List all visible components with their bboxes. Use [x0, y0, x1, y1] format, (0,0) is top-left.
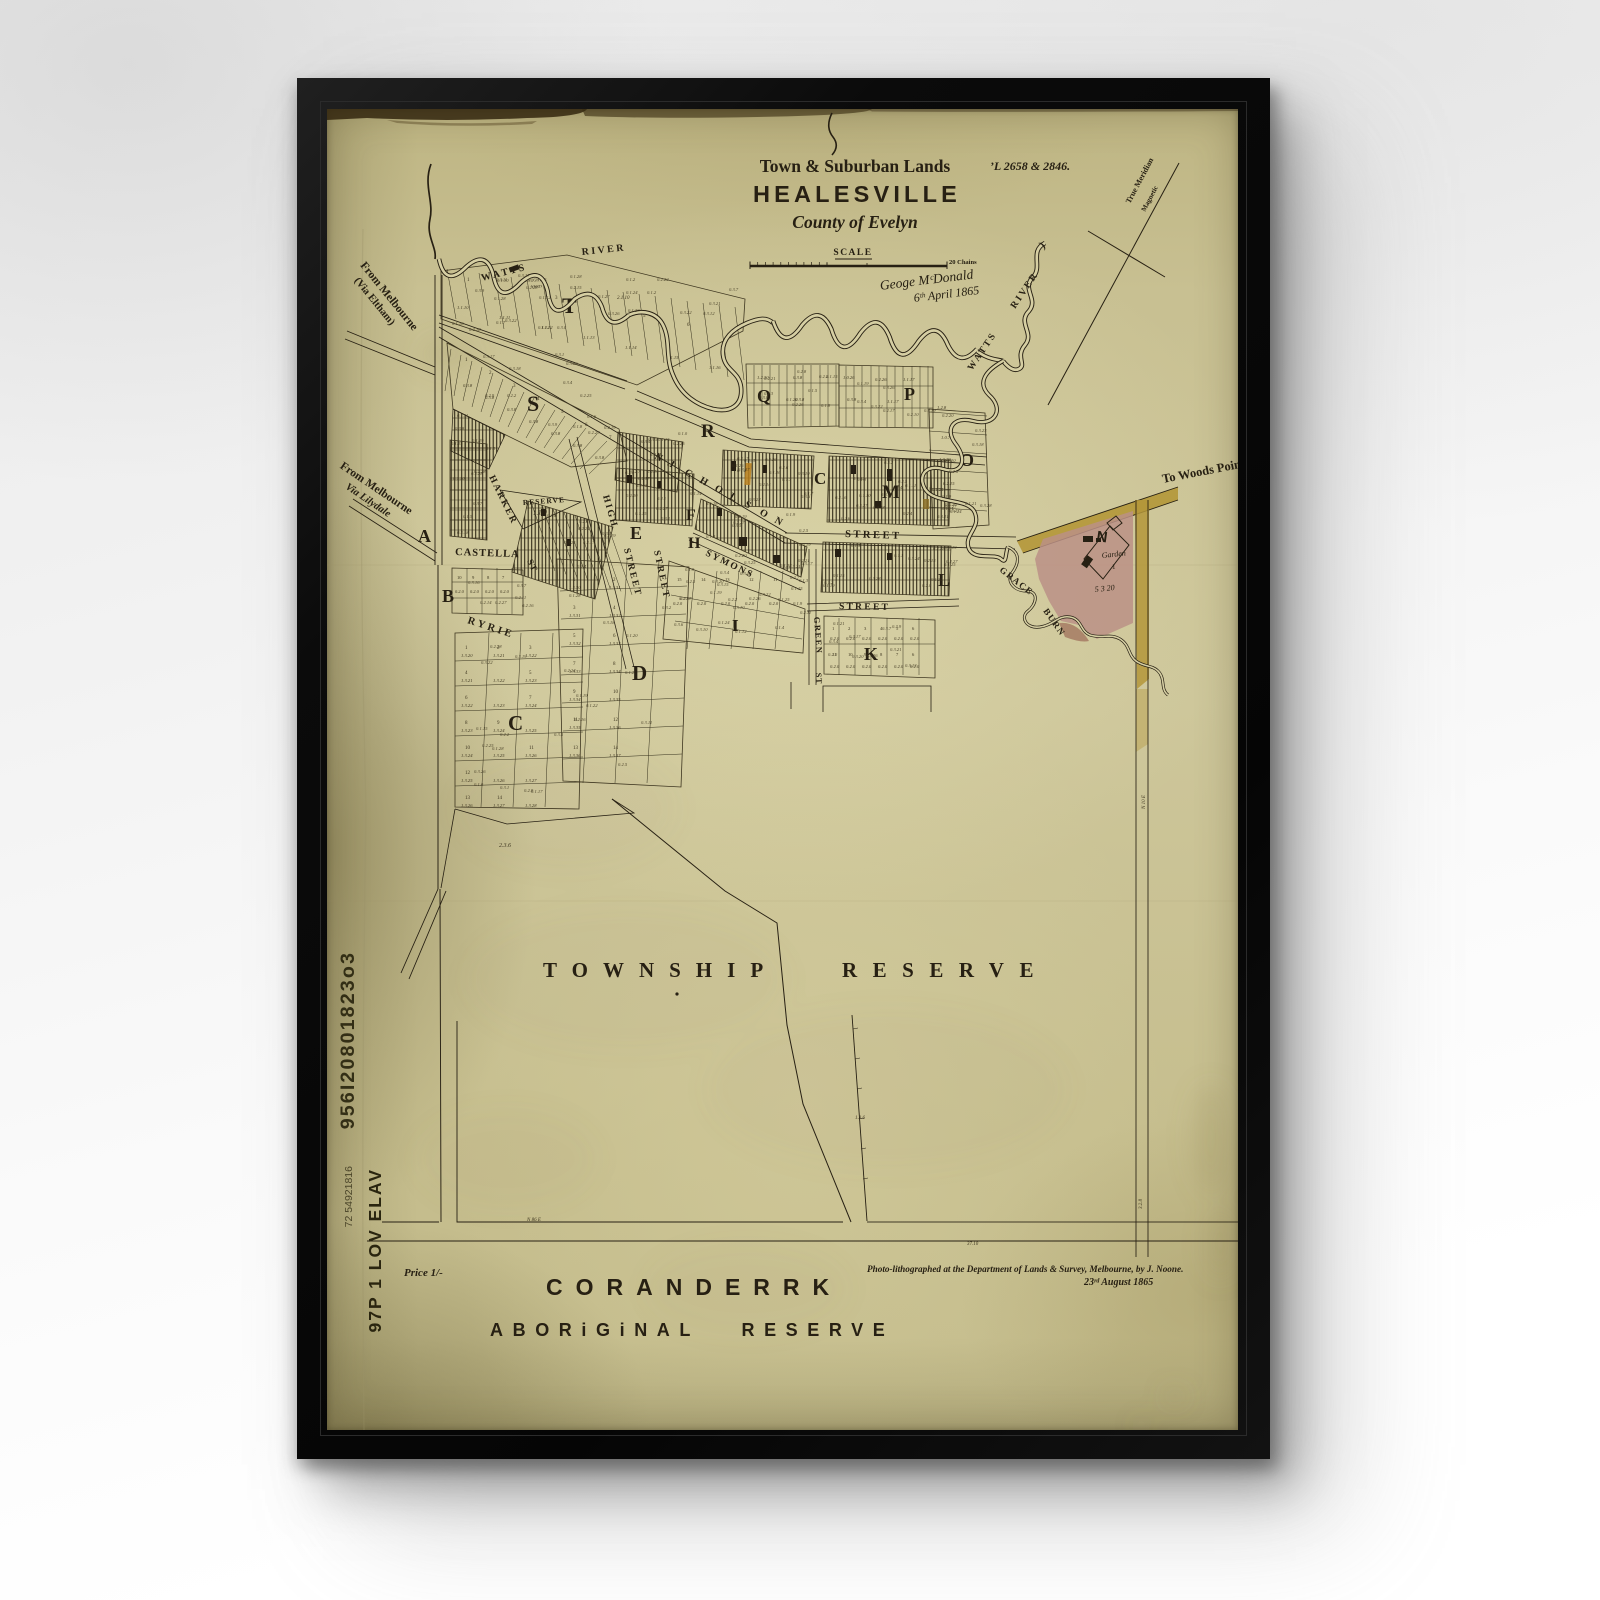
svg-text:B: B	[442, 586, 454, 606]
svg-text:K: K	[864, 644, 878, 664]
svg-text:0.3.7: 0.3.7	[473, 501, 483, 506]
svg-text:0.3.28: 0.3.28	[869, 576, 881, 581]
svg-text:0.2.6: 0.2.6	[579, 519, 589, 524]
svg-text:0.3.26: 0.3.26	[883, 385, 895, 390]
svg-text:D: D	[632, 661, 647, 685]
svg-text:1: 1	[465, 646, 468, 651]
svg-text:0.1.21: 0.1.21	[833, 621, 844, 626]
svg-text:0.3.21: 0.3.21	[789, 564, 800, 569]
svg-text:O: O	[713, 483, 725, 497]
svg-text:0.2.0: 0.2.0	[470, 589, 480, 594]
svg-text:5: 5	[529, 671, 532, 676]
svg-text:0.3.18: 0.3.18	[972, 442, 984, 447]
svg-text:0.3.0: 0.3.0	[557, 325, 567, 330]
svg-text:0.3.22: 0.3.22	[481, 660, 493, 665]
svg-text:0.2.28: 0.2.28	[469, 327, 481, 332]
svg-text:0.1.15: 0.1.15	[658, 437, 670, 442]
svg-text:0.1.2: 0.1.2	[647, 290, 657, 295]
svg-text:6: 6	[912, 652, 915, 657]
svg-text:0.3.9: 0.3.9	[602, 531, 612, 536]
svg-text:12: 12	[465, 771, 471, 776]
svg-text:0.2.0: 0.2.0	[910, 636, 920, 641]
svg-text:0.3.12: 0.3.12	[703, 311, 715, 316]
svg-text:0.2.0: 0.2.0	[862, 636, 872, 641]
svg-text:4: 4	[613, 606, 616, 611]
svg-text:10: 10	[457, 575, 462, 580]
svg-text:W A T T S: W A T T S	[966, 332, 998, 372]
svg-text:0.1.24: 0.1.24	[718, 620, 730, 625]
svg-text:0.2.17: 0.2.17	[737, 456, 749, 461]
svg-text:O: O	[758, 507, 770, 521]
svg-text:0.3.19: 0.3.19	[799, 542, 811, 547]
svg-text:8: 8	[613, 662, 616, 667]
svg-text:GRACE: GRACE	[998, 565, 1036, 598]
svg-text:0.3.17: 0.3.17	[518, 273, 530, 278]
svg-text:0.2.11: 0.2.11	[800, 610, 811, 615]
svg-text:0.3.7: 0.3.7	[517, 583, 527, 588]
svg-text:8: 8	[880, 652, 883, 657]
svg-text:0.2.14: 0.2.14	[759, 482, 771, 487]
svg-text:L: L	[728, 491, 740, 504]
svg-text:0.2.26: 0.2.26	[792, 402, 804, 407]
svg-text:9: 9	[573, 690, 576, 695]
svg-text:0.2.27: 0.2.27	[656, 506, 668, 511]
svg-text:2: 2	[848, 626, 851, 631]
svg-text:0.2.6: 0.2.6	[841, 516, 851, 521]
svg-text:0.2.15: 0.2.15	[744, 458, 756, 463]
svg-text:0.2.28: 0.2.28	[933, 546, 945, 551]
svg-text:0.1.23: 0.1.23	[628, 308, 640, 313]
svg-text:0.2.11: 0.2.11	[515, 595, 526, 600]
svg-text:0.2.28: 0.2.28	[526, 285, 538, 290]
svg-text:0.3.22: 0.3.22	[749, 497, 761, 502]
svg-text:N 86 E: N 86 E	[526, 1218, 541, 1223]
svg-text:1.3.24: 1.3.24	[525, 703, 537, 708]
svg-text:0.3.26: 0.3.26	[608, 311, 620, 316]
svg-text:0.1.25: 0.1.25	[778, 597, 790, 602]
svg-text:0.3.8: 0.3.8	[573, 443, 583, 448]
svg-text:1.0.26: 1.0.26	[843, 375, 855, 380]
svg-text:0.3.8: 0.3.8	[595, 455, 605, 460]
svg-text:1.3.22: 1.3.22	[493, 678, 505, 683]
svg-text:4: 4	[537, 397, 540, 402]
svg-text:0.2.4: 0.2.4	[893, 485, 903, 490]
svg-text:RESERVE: RESERVE	[842, 958, 1049, 982]
svg-text:72 54921816: 72 54921816	[343, 1166, 355, 1227]
svg-text:0.3.22: 0.3.22	[759, 592, 771, 597]
svg-text:6ᵗʰ April 1865: 6ᵗʰ April 1865	[913, 283, 980, 305]
svg-text:3.2.8: 3.2.8	[1139, 1199, 1144, 1210]
svg-text:6: 6	[912, 626, 915, 631]
svg-text:0.2.22: 0.2.22	[657, 277, 669, 282]
svg-text:C: C	[814, 469, 826, 488]
svg-text:L: L	[938, 570, 950, 590]
svg-text:A: A	[418, 526, 431, 546]
svg-text:0.2.0: 0.2.0	[769, 601, 779, 606]
svg-text:0.3.8: 0.3.8	[455, 426, 465, 431]
svg-text:0.1.15: 0.1.15	[791, 586, 803, 591]
svg-text:0.1.6: 0.1.6	[587, 414, 597, 419]
svg-text:0.2.0: 0.2.0	[485, 589, 495, 594]
svg-text:1.1.14: 1.1.14	[625, 345, 637, 350]
svg-text:0.1.24: 0.1.24	[626, 290, 638, 295]
svg-text:5: 5	[896, 626, 899, 631]
svg-text:0.3.26: 0.3.26	[765, 457, 777, 462]
svg-text:0.2.4: 0.2.4	[903, 511, 913, 516]
svg-text:15: 15	[677, 577, 682, 582]
svg-text:0.3.26: 0.3.26	[866, 653, 878, 658]
svg-text:7: 7	[896, 652, 899, 657]
svg-text:0.1.8: 0.1.8	[821, 403, 831, 408]
svg-text:1.0.7: 1.0.7	[941, 435, 951, 440]
svg-text:6: 6	[613, 634, 616, 639]
svg-text:0.3.28: 0.3.28	[980, 503, 992, 508]
svg-text:0.2.10: 0.2.10	[907, 412, 919, 417]
svg-text:0.1.27: 0.1.27	[780, 563, 792, 568]
svg-text:0.2.5: 0.2.5	[898, 479, 908, 484]
svg-text:2: 2	[613, 578, 616, 583]
svg-text:0.2.16: 0.2.16	[522, 603, 534, 608]
svg-text:1.3.24: 1.3.24	[461, 753, 473, 758]
svg-text:10: 10	[848, 652, 853, 657]
svg-text:CASTELLA: CASTELLA	[455, 547, 520, 560]
svg-text:HIGH: HIGH	[600, 494, 619, 529]
svg-text:7: 7	[502, 575, 505, 580]
svg-text:0.3.10: 0.3.10	[696, 627, 708, 632]
svg-text:12: 12	[749, 577, 754, 582]
svg-text:0.2.0: 0.2.0	[721, 601, 731, 606]
svg-text:0.2.28: 0.2.28	[588, 430, 600, 435]
svg-text:0.3.8: 0.3.8	[759, 395, 769, 400]
svg-text:4: 4	[599, 305, 602, 310]
svg-text:0.2.8: 0.2.8	[524, 788, 534, 793]
svg-text:0.1.21: 0.1.21	[965, 501, 976, 506]
svg-text:1.3.24: 1.3.24	[493, 728, 505, 733]
svg-text:11: 11	[529, 746, 534, 751]
svg-text:R I V E R: R I V E R	[1009, 272, 1040, 311]
svg-text:0.1.3: 0.1.3	[764, 391, 774, 396]
svg-text:0.2.25: 0.2.25	[580, 393, 592, 398]
svg-text:Via Lilydale: Via Lilydale	[343, 481, 393, 520]
svg-text:0.1.25: 0.1.25	[944, 562, 956, 567]
svg-text:M: M	[882, 482, 900, 503]
svg-text:0.3.18: 0.3.18	[457, 530, 469, 535]
svg-text:0.3.21: 0.3.21	[709, 301, 720, 306]
svg-text:0.1.27: 0.1.27	[598, 294, 610, 299]
svg-text:1.3.26: 1.3.26	[493, 778, 505, 783]
svg-text:0.1.21: 0.1.21	[932, 487, 943, 492]
svg-text:0.1.7: 0.1.7	[496, 320, 506, 325]
svg-text:0.2.21: 0.2.21	[798, 558, 809, 563]
svg-text:0.1.17: 0.1.17	[531, 789, 543, 794]
svg-text:0.2.27: 0.2.27	[946, 559, 958, 564]
svg-text:1.0.29: 1.0.29	[939, 457, 951, 462]
svg-text:5: 5	[643, 314, 646, 319]
svg-text:0.2.0: 0.2.0	[846, 664, 856, 669]
svg-text:0.3.21: 0.3.21	[937, 514, 948, 519]
svg-text:0.1.26: 0.1.26	[769, 470, 781, 475]
svg-text:0.3.17: 0.3.17	[483, 354, 495, 359]
svg-text:0.1.5: 0.1.5	[808, 388, 818, 393]
svg-text:ST: ST	[525, 557, 540, 573]
svg-text:C: C	[508, 711, 523, 735]
svg-text:1.1.13: 1.1.13	[583, 335, 595, 340]
svg-text:0.1.0: 0.1.0	[678, 431, 688, 436]
svg-text:RYRIE: RYRIE	[466, 615, 515, 640]
svg-text:0.3.4: 0.3.4	[829, 639, 839, 644]
svg-text:0.2.8: 0.2.8	[797, 369, 807, 374]
svg-text:0.2.17: 0.2.17	[883, 408, 895, 413]
svg-text:0.3.8: 0.3.8	[529, 419, 539, 424]
svg-text:1.1.10: 1.1.10	[457, 305, 469, 310]
svg-text:7: 7	[573, 662, 576, 667]
svg-text:0.2.20: 0.2.20	[735, 553, 747, 558]
svg-text:10: 10	[613, 690, 619, 695]
svg-text:1.3.32: 1.3.32	[569, 641, 581, 646]
svg-text:N: N	[1095, 528, 1108, 546]
svg-text:0.3.7: 0.3.7	[882, 626, 892, 631]
svg-text:1.3.33: 1.3.33	[569, 669, 581, 674]
svg-text:23ʳᵈ August 1865: 23ʳᵈ August 1865	[1083, 1277, 1153, 1288]
svg-text:0.1.3: 0.1.3	[799, 578, 809, 583]
svg-text:0.2.0: 0.2.0	[922, 583, 932, 588]
svg-text:0.3.5: 0.3.5	[625, 470, 635, 475]
svg-text:20 Chains: 20 Chains	[949, 259, 977, 266]
svg-text:0.3.17: 0.3.17	[849, 634, 861, 639]
svg-text:SLAUGHTER: SLAUGHTER	[523, 277, 547, 283]
svg-text:0.3.17: 0.3.17	[881, 492, 893, 497]
svg-text:0.1.10: 0.1.10	[497, 278, 509, 283]
svg-text:0.2.27: 0.2.27	[733, 520, 745, 525]
svg-text:0.2.10: 0.2.10	[944, 458, 956, 463]
svg-text:STREET: STREET	[651, 550, 671, 600]
svg-text:1.1.15: 1.1.15	[667, 355, 679, 360]
svg-text:0.3.8: 0.3.8	[795, 397, 805, 402]
svg-text:0.2.17: 0.2.17	[680, 596, 692, 601]
svg-text:0.1.15: 0.1.15	[635, 511, 647, 516]
svg-text:0.3.8: 0.3.8	[551, 431, 561, 436]
svg-text:0.1.2: 0.1.2	[625, 670, 635, 675]
svg-text:0.3.9: 0.3.9	[475, 288, 485, 293]
svg-text:GREEN: GREEN	[812, 616, 825, 654]
svg-text:0.2.24: 0.2.24	[564, 668, 576, 673]
svg-text:0.2.16: 0.2.16	[574, 717, 586, 722]
svg-text:1.1.17: 1.1.17	[903, 377, 915, 382]
svg-text:0.1.4: 0.1.4	[775, 625, 785, 630]
svg-text:37.10: 37.10	[967, 1242, 979, 1247]
svg-text:0.3.8: 0.3.8	[793, 375, 803, 380]
svg-text:0.1.8: 0.1.8	[706, 534, 716, 539]
svg-text:0.2.0: 0.2.0	[500, 589, 510, 594]
svg-text:0.1.19: 0.1.19	[576, 693, 588, 698]
svg-text:1.3.31: 1.3.31	[569, 613, 580, 618]
svg-text:N: N	[653, 451, 665, 465]
svg-text:HARKER: HARKER	[486, 474, 519, 527]
svg-text:0.1.24: 0.1.24	[950, 509, 962, 514]
svg-text:0.3.16: 0.3.16	[468, 580, 480, 585]
svg-text:13: 13	[725, 577, 730, 582]
svg-text:S: S	[527, 391, 539, 416]
svg-text:0.1.16: 0.1.16	[452, 321, 464, 326]
svg-text:0.2.11: 0.2.11	[650, 452, 661, 457]
svg-text:0.3.19: 0.3.19	[515, 654, 527, 659]
svg-text:0.2.14: 0.2.14	[647, 469, 659, 474]
svg-text:0.3.7: 0.3.7	[729, 287, 739, 292]
svg-text:1.3.25: 1.3.25	[461, 778, 473, 783]
svg-text:7: 7	[529, 696, 532, 701]
svg-text:0.3.2: 0.3.2	[884, 460, 894, 465]
svg-text:0.2.5: 0.2.5	[799, 528, 809, 533]
svg-text:0.2.19: 0.2.19	[735, 514, 747, 519]
svg-text:0.1.20: 0.1.20	[931, 577, 943, 582]
svg-text:Photo-lithographed at the Depa: Photo-lithographed at the Department of …	[867, 1264, 1183, 1274]
svg-text:2: 2	[511, 287, 514, 292]
svg-text:1.3.26: 1.3.26	[525, 753, 537, 758]
svg-text:0.1.9: 0.1.9	[793, 601, 803, 606]
svg-text:0.1.28: 0.1.28	[494, 296, 506, 301]
svg-text:0.3.10: 0.3.10	[798, 471, 810, 476]
svg-text:0.2.0: 0.2.0	[846, 636, 856, 641]
svg-text:0.3.4: 0.3.4	[720, 570, 730, 575]
svg-text:0.1.20: 0.1.20	[626, 633, 638, 638]
svg-text:0.2.13: 0.2.13	[924, 558, 936, 563]
svg-text:BURN: BURN	[1041, 606, 1067, 638]
svg-text:0.3.19: 0.3.19	[924, 408, 936, 413]
svg-text:1: 1	[573, 578, 576, 583]
svg-text:0.2.6: 0.2.6	[949, 469, 959, 474]
svg-text:0.3.9: 0.3.9	[892, 624, 902, 629]
svg-text:0.3.25: 0.3.25	[564, 540, 576, 545]
svg-text:0.3.6: 0.3.6	[674, 622, 684, 627]
svg-text:H: H	[698, 475, 710, 489]
svg-text:0.1.15: 0.1.15	[826, 374, 838, 379]
svg-text:0.2.15: 0.2.15	[570, 285, 582, 290]
svg-text:10: 10	[465, 746, 471, 751]
svg-text:F: F	[686, 507, 696, 524]
svg-text:3: 3	[573, 606, 576, 611]
svg-text:0.3.27: 0.3.27	[948, 508, 960, 513]
svg-text:From Melbourne: From Melbourne	[338, 460, 415, 517]
svg-text:0.1.10: 0.1.10	[859, 493, 871, 498]
svg-text:0.2.26: 0.2.26	[749, 596, 761, 601]
svg-text:0.1.0: 0.1.0	[474, 782, 484, 787]
svg-text:9: 9	[864, 652, 867, 657]
svg-text:0.2.19: 0.2.19	[604, 533, 616, 538]
svg-text:0.3.21: 0.3.21	[890, 647, 901, 652]
svg-text:0.3.23: 0.3.23	[975, 428, 987, 433]
svg-text:0.2.27: 0.2.27	[945, 504, 957, 509]
svg-text:1.1.16: 1.1.16	[709, 365, 721, 370]
svg-text:0.1.19: 0.1.19	[710, 590, 722, 595]
svg-text:0.3.24: 0.3.24	[908, 556, 920, 561]
svg-text:0.1.5: 0.1.5	[486, 446, 496, 451]
svg-text:H: H	[688, 535, 701, 552]
svg-text:1.1.11: 1.1.11	[499, 315, 510, 320]
svg-text:0.1.25: 0.1.25	[451, 441, 463, 446]
svg-text:1.3.25: 1.3.25	[525, 728, 537, 733]
svg-text:0.3.20: 0.3.20	[712, 579, 724, 584]
svg-text:7: 7	[609, 436, 612, 441]
svg-text:0.2.28: 0.2.28	[490, 644, 502, 649]
svg-text:0.2.14: 0.2.14	[480, 600, 492, 605]
svg-text:1.3.28: 1.3.28	[525, 803, 537, 808]
svg-text:6.2.15: 6.2.15	[943, 481, 955, 486]
svg-text:(Via Eltham): (Via Eltham)	[352, 276, 398, 329]
svg-text:97P 1 LOV ELAV: 97P 1 LOV ELAV	[365, 1168, 385, 1333]
svg-text:14: 14	[497, 796, 503, 801]
svg-text:0.3.25: 0.3.25	[744, 560, 756, 565]
svg-text:4: 4	[880, 626, 883, 631]
svg-text:1.3.34: 1.3.34	[609, 669, 621, 674]
svg-text:0.2.27: 0.2.27	[495, 600, 507, 605]
svg-text:0.2.7: 0.2.7	[790, 575, 800, 580]
svg-text:Geoge MᶜDonald: Geoge MᶜDonald	[879, 267, 974, 293]
svg-text:0.3.8: 0.3.8	[485, 395, 495, 400]
svg-text:8: 8	[465, 721, 468, 726]
svg-text:1.3.35: 1.3.35	[609, 697, 621, 702]
svg-text:RESERVE: RESERVE	[523, 495, 566, 507]
svg-text:From Melbourne: From Melbourne	[357, 260, 419, 333]
svg-text:0.3.26: 0.3.26	[945, 502, 957, 507]
svg-text:County of Evelyn: County of Evelyn	[792, 212, 917, 232]
svg-text:0.3.2: 0.3.2	[662, 605, 672, 610]
svg-text:11: 11	[773, 577, 778, 582]
svg-text:0.2.19: 0.2.19	[604, 425, 616, 430]
svg-text:0.3.27: 0.3.27	[856, 503, 868, 508]
svg-text:6: 6	[687, 323, 690, 328]
svg-text:0.1.9: 0.1.9	[857, 477, 867, 482]
svg-text:5 3 20: 5 3 20	[1094, 583, 1115, 594]
svg-text:N 10 E: N 10 E	[1142, 795, 1147, 810]
svg-text:1.3.26: 1.3.26	[461, 803, 473, 808]
svg-text:0.3.5: 0.3.5	[648, 437, 658, 442]
svg-text:0.2.7: 0.2.7	[631, 469, 641, 474]
svg-text:0.2.20: 0.2.20	[626, 493, 638, 498]
svg-text:0.2.17: 0.2.17	[679, 596, 691, 601]
svg-text:0.1.26: 0.1.26	[732, 463, 744, 468]
svg-text:2: 2	[497, 646, 500, 651]
svg-text:0.2.0: 0.2.0	[894, 664, 904, 669]
svg-text:0.1.19: 0.1.19	[472, 438, 484, 443]
svg-text:Garden: Garden	[1101, 549, 1126, 560]
svg-text:0.3.1: 0.3.1	[500, 785, 509, 790]
svg-text:1.3.37: 1.3.37	[609, 753, 621, 758]
svg-text:0.2.16: 0.2.16	[835, 495, 847, 500]
svg-text:0.1.19: 0.1.19	[857, 381, 869, 386]
svg-text:0.2.26: 0.2.26	[875, 377, 887, 382]
svg-text:0.3.15: 0.3.15	[717, 582, 729, 587]
svg-text:0.3.4: 0.3.4	[857, 399, 867, 404]
svg-text:0.2.17: 0.2.17	[583, 540, 595, 545]
svg-text:0.2.0: 0.2.0	[878, 636, 888, 641]
svg-text:12: 12	[613, 718, 619, 723]
svg-text:8: 8	[487, 575, 490, 580]
svg-text:0.2.0: 0.2.0	[910, 664, 920, 669]
svg-text:1.3.23: 1.3.23	[493, 703, 505, 708]
svg-text:0.2.0: 0.2.0	[830, 664, 840, 669]
svg-text:6: 6	[465, 696, 468, 701]
svg-text:0.1.20: 0.1.20	[786, 397, 798, 402]
svg-text:1.3.21: 1.3.21	[493, 653, 504, 658]
svg-text:0.2.26: 0.2.26	[673, 441, 685, 446]
svg-text:1.3.27: 1.3.27	[525, 778, 537, 783]
svg-text:0.2.18: 0.2.18	[636, 483, 648, 488]
svg-text:0.2.0: 0.2.0	[828, 652, 838, 657]
svg-text:0.3.18: 0.3.18	[603, 620, 615, 625]
svg-text:3: 3	[513, 384, 516, 389]
svg-text:0.1.5: 0.1.5	[851, 543, 861, 548]
svg-text:0.1.21: 0.1.21	[942, 506, 953, 511]
